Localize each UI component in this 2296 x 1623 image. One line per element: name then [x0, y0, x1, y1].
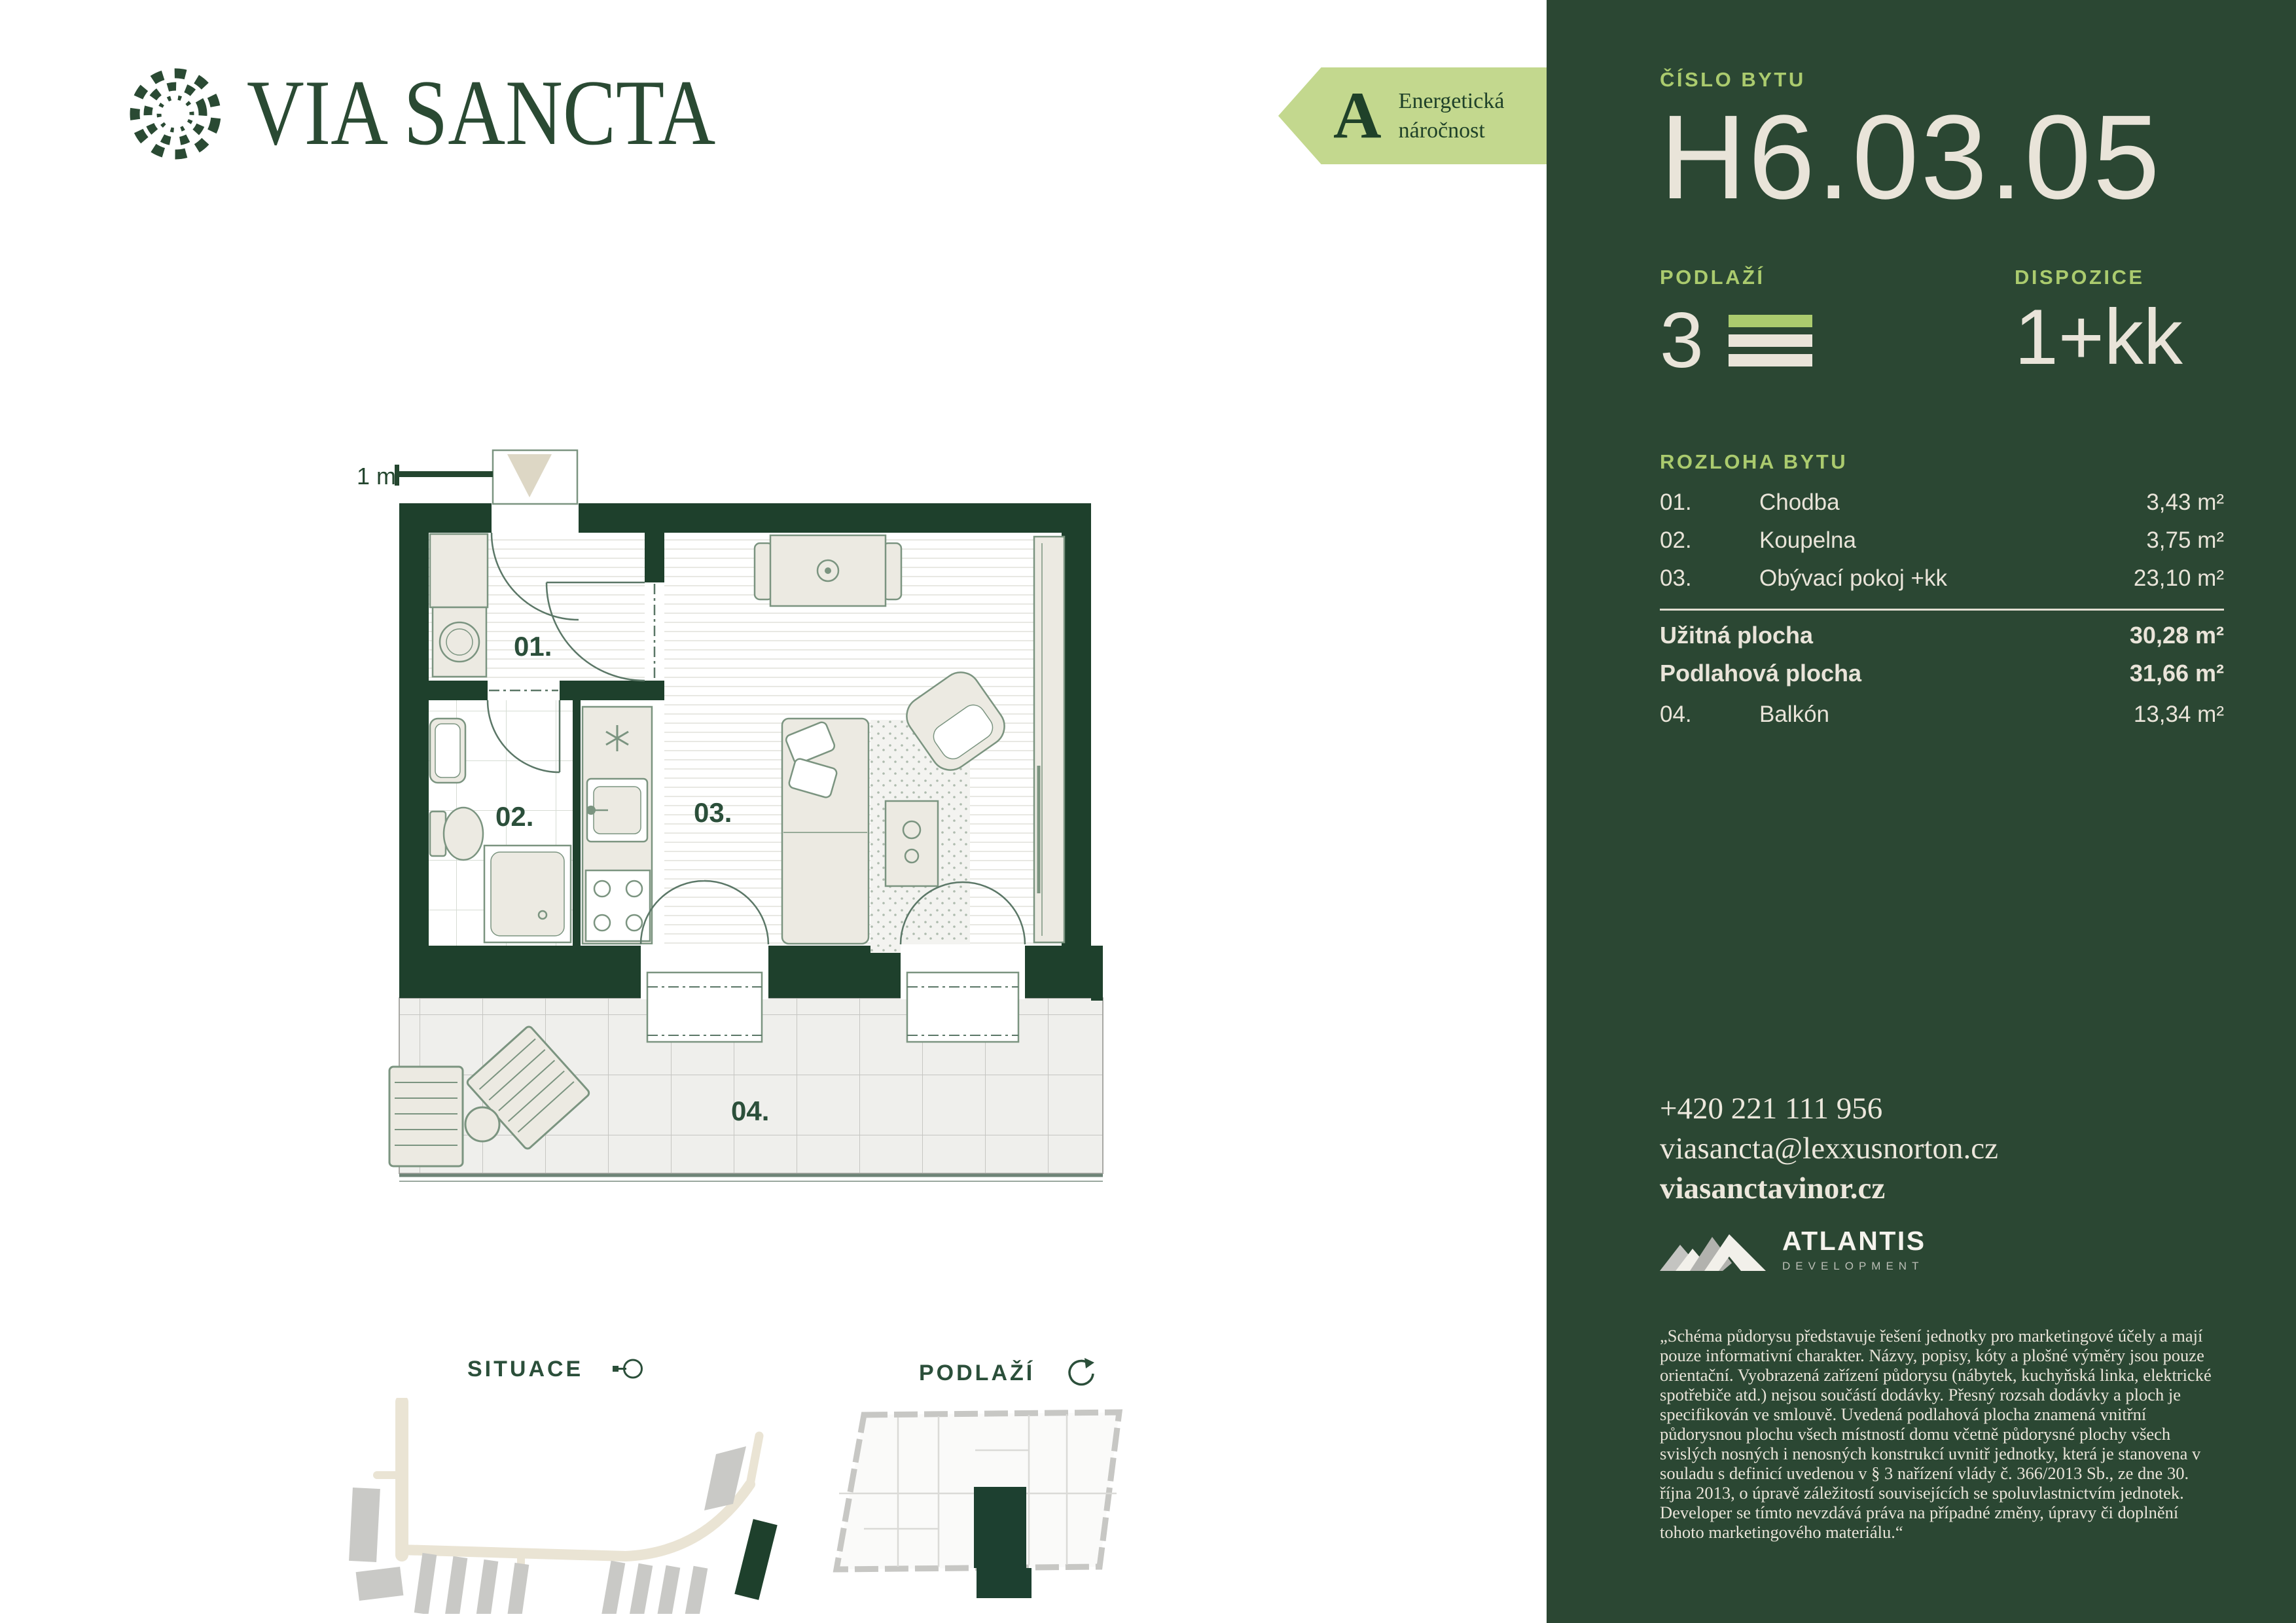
developer-text: ATLANTIS DEVELOPMENT — [1782, 1228, 1926, 1273]
floor-number: 3 — [1660, 301, 1704, 380]
room-name: Chodba — [1759, 490, 1840, 516]
plan-room-label-01: 01. — [514, 631, 552, 662]
unit-number-label: ČÍSLO BYTU — [1660, 68, 1806, 92]
table-row: 01. Chodba 3,43 m² — [1660, 490, 2224, 516]
info-panel: ČÍSLO BYTU H6.03.05 PODLAŽÍ DISPOZICE 3 … — [1547, 0, 2296, 1623]
total-name: Podlahová plocha — [1660, 660, 1861, 687]
podlazi-map — [826, 1404, 1134, 1607]
podlazi-heading: PODLAŽÍ — [919, 1356, 1098, 1390]
situace-highlight-building — [734, 1519, 777, 1600]
kitchen-line-icon — [583, 707, 652, 944]
room-number: 01. — [1660, 490, 1759, 516]
energy-label-line2: náročnost — [1399, 116, 1505, 145]
energy-label-line1: Energetická — [1399, 86, 1505, 116]
developer-name: ATLANTIS — [1782, 1228, 1926, 1255]
washer-icon — [430, 534, 488, 677]
plan-room-label-02: 02. — [495, 801, 533, 832]
plan-room-label-03: 03. — [694, 797, 732, 828]
room-area: 23,10 m² — [2134, 565, 2224, 592]
developer-subtitle: DEVELOPMENT — [1782, 1260, 1926, 1273]
page: VIA SANCTA A Energetická náročnost — [0, 0, 2296, 1623]
room-name: Koupelna — [1759, 527, 1856, 554]
total-area: 31,66 m² — [2130, 660, 2224, 687]
table-row: 04. Balkón 13,34 m² — [1660, 702, 2224, 728]
energy-label: Energetická náročnost — [1399, 86, 1505, 145]
layout-label: DISPOZICE — [2015, 266, 2145, 289]
podlazi-highlight-unit — [974, 1487, 1026, 1568]
compass-icon — [612, 1356, 643, 1382]
unit-number: H6.03.05 — [1660, 97, 2162, 217]
table-row: 02. Koupelna 3,75 m² — [1660, 527, 2224, 554]
area-section-label: ROZLOHA BYTU — [1660, 450, 1848, 474]
brand-logo-icon — [122, 54, 230, 171]
plan-scale-label: 1 m — [357, 463, 396, 490]
rotate-icon — [1064, 1356, 1098, 1390]
developer-logo: ATLANTIS DEVELOPMENT — [1660, 1228, 1926, 1273]
total-row: Podlahová plocha 31,66 m² — [1660, 660, 2224, 687]
floorplan: 1 m 01. 02. 03. 04. — [357, 412, 1116, 1230]
brand-logo: VIA SANCTA — [122, 54, 798, 171]
podlazi-label: PODLAŽÍ — [919, 1361, 1035, 1386]
situace-map — [325, 1398, 783, 1614]
room-area: 13,34 m² — [2134, 702, 2224, 728]
legal-disclaimer: „Schéma půdorysu představuje řešení jedn… — [1660, 1326, 2224, 1542]
total-row: Užitná plocha 30,28 m² — [1660, 622, 2224, 649]
contact-website[interactable]: viasanctavinor.cz — [1660, 1169, 1998, 1209]
room-number: 03. — [1660, 565, 1759, 592]
contact-email[interactable]: viasancta@lexxusnorton.cz — [1660, 1129, 1998, 1169]
situace-label: SITUACE — [467, 1357, 583, 1382]
floor-level-icon — [1729, 315, 1812, 366]
contact-block: +420 221 111 956 viasancta@lexxusnorton.… — [1660, 1089, 1998, 1209]
energy-grade: A — [1333, 86, 1382, 146]
floor-label: PODLAŽÍ — [1660, 266, 1765, 289]
total-area: 30,28 m² — [2130, 622, 2224, 649]
table-row: 03. Obývací pokoj +kk 23,10 m² — [1660, 565, 2224, 592]
floor-value: 3 — [1660, 301, 1812, 380]
contact-phone[interactable]: +420 221 111 956 — [1660, 1089, 1998, 1129]
atlantis-mark-icon — [1660, 1230, 1768, 1271]
room-name: Balkón — [1759, 702, 1829, 728]
room-area: 3,43 m² — [2146, 490, 2224, 516]
room-number: 04. — [1660, 702, 1759, 728]
total-name: Užitná plocha — [1660, 622, 1813, 649]
floorplan-drawing: 1 m 01. 02. 03. 04. — [357, 412, 1116, 1230]
layout-value: 1+kk — [2015, 298, 2183, 376]
situace-heading: SITUACE — [467, 1356, 643, 1382]
room-area: 3,75 m² — [2146, 527, 2224, 554]
energy-badge: A Energetická náročnost — [1278, 67, 1547, 164]
divider — [1660, 609, 2224, 611]
room-name: Obývací pokoj +kk — [1759, 565, 1947, 592]
room-number: 02. — [1660, 527, 1759, 554]
plan-room-label-04: 04. — [731, 1096, 769, 1126]
plan-scale-bar — [395, 465, 493, 486]
brand-wordmark: VIA SANCTA — [247, 66, 715, 160]
